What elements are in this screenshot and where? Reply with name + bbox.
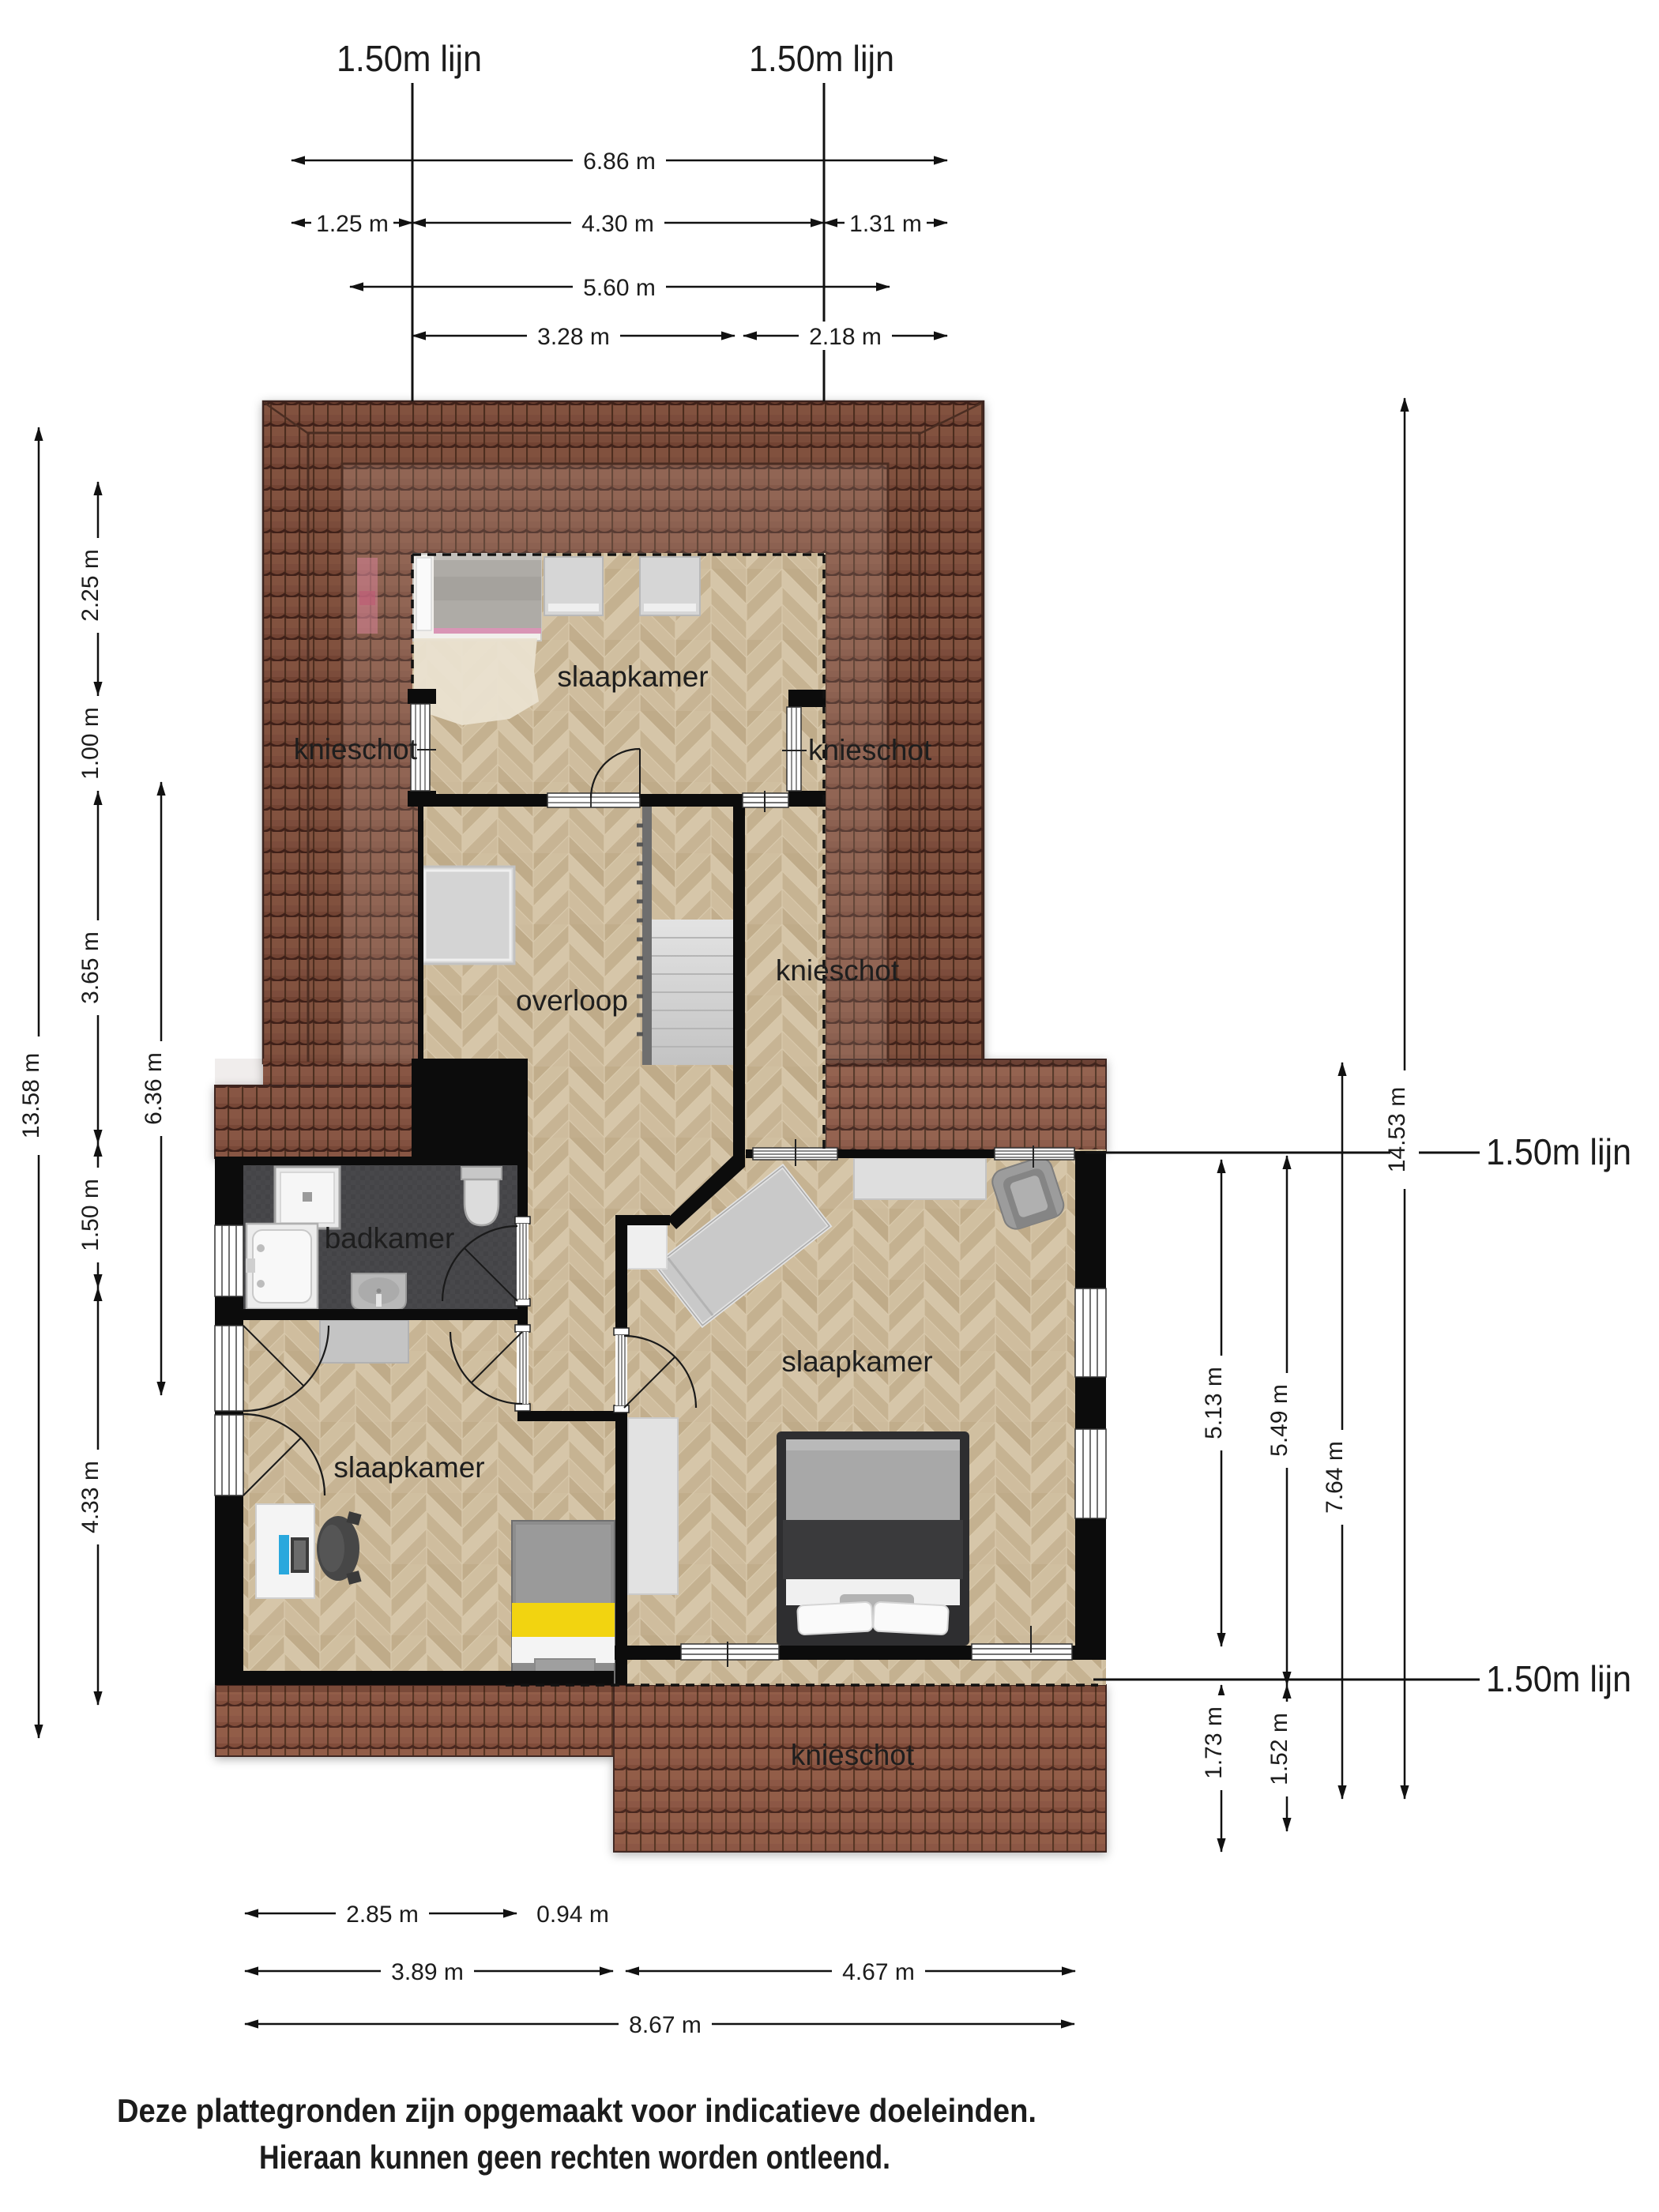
svg-text:slaapkamer: slaapkamer (781, 1345, 932, 1378)
svg-text:1.50m lijn: 1.50m lijn (1486, 1658, 1631, 1699)
svg-text:Deze plattegronden zijn opgema: Deze plattegronden zijn opgemaakt voor i… (117, 2092, 1036, 2129)
svg-text:5.60 m: 5.60 m (583, 275, 656, 301)
svg-text:4.33 m: 4.33 m (77, 1461, 103, 1533)
svg-text:Hieraan kunnen geen rechten wo: Hieraan kunnen geen rechten worden ontle… (259, 2139, 890, 2176)
svg-text:slaapkamer: slaapkamer (557, 660, 708, 693)
svg-text:1.50m lijn: 1.50m lijn (1486, 1131, 1631, 1172)
svg-text:overloop: overloop (516, 984, 628, 1017)
svg-text:knieschot: knieschot (294, 733, 418, 766)
svg-text:1.50m lijn: 1.50m lijn (337, 38, 482, 79)
svg-text:8.67 m: 8.67 m (629, 2012, 702, 2038)
svg-text:6.86 m: 6.86 m (583, 149, 656, 175)
svg-text:slaapkamer: slaapkamer (333, 1451, 484, 1484)
svg-text:2.25 m: 2.25 m (77, 549, 103, 622)
svg-text:1.50 m: 1.50 m (77, 1179, 103, 1251)
svg-text:2.18 m: 2.18 m (809, 324, 882, 350)
svg-text:badkamer: badkamer (325, 1222, 455, 1255)
svg-text:5.49 m: 5.49 m (1266, 1384, 1292, 1457)
svg-text:3.65 m: 3.65 m (77, 931, 103, 1004)
svg-text:1.52 m: 1.52 m (1266, 1713, 1292, 1785)
svg-text:1.73 m: 1.73 m (1201, 1706, 1227, 1779)
svg-text:knieschot: knieschot (776, 954, 900, 987)
svg-text:13.58 m: 13.58 m (18, 1053, 44, 1138)
svg-text:14.53 m: 14.53 m (1384, 1087, 1410, 1172)
svg-text:1.25 m: 1.25 m (316, 211, 389, 237)
svg-text:1.00 m: 1.00 m (77, 707, 103, 780)
svg-text:7.64 m: 7.64 m (1322, 1441, 1348, 1514)
svg-text:4.67 m: 4.67 m (842, 1959, 915, 1985)
svg-text:0.94 m: 0.94 m (536, 1902, 609, 1928)
svg-text:1.50m lijn: 1.50m lijn (749, 38, 894, 79)
svg-text:3.28 m: 3.28 m (537, 324, 610, 350)
svg-text:3.89 m: 3.89 m (391, 1959, 464, 1985)
svg-text:5.13 m: 5.13 m (1201, 1367, 1227, 1439)
svg-text:knieschot: knieschot (791, 1739, 915, 1771)
svg-text:2.85 m: 2.85 m (346, 1902, 419, 1928)
svg-text:1.31 m: 1.31 m (849, 211, 922, 237)
svg-text:knieschot: knieschot (808, 734, 932, 766)
svg-text:4.30 m: 4.30 m (581, 211, 654, 237)
svg-text:6.36 m: 6.36 m (141, 1052, 167, 1125)
